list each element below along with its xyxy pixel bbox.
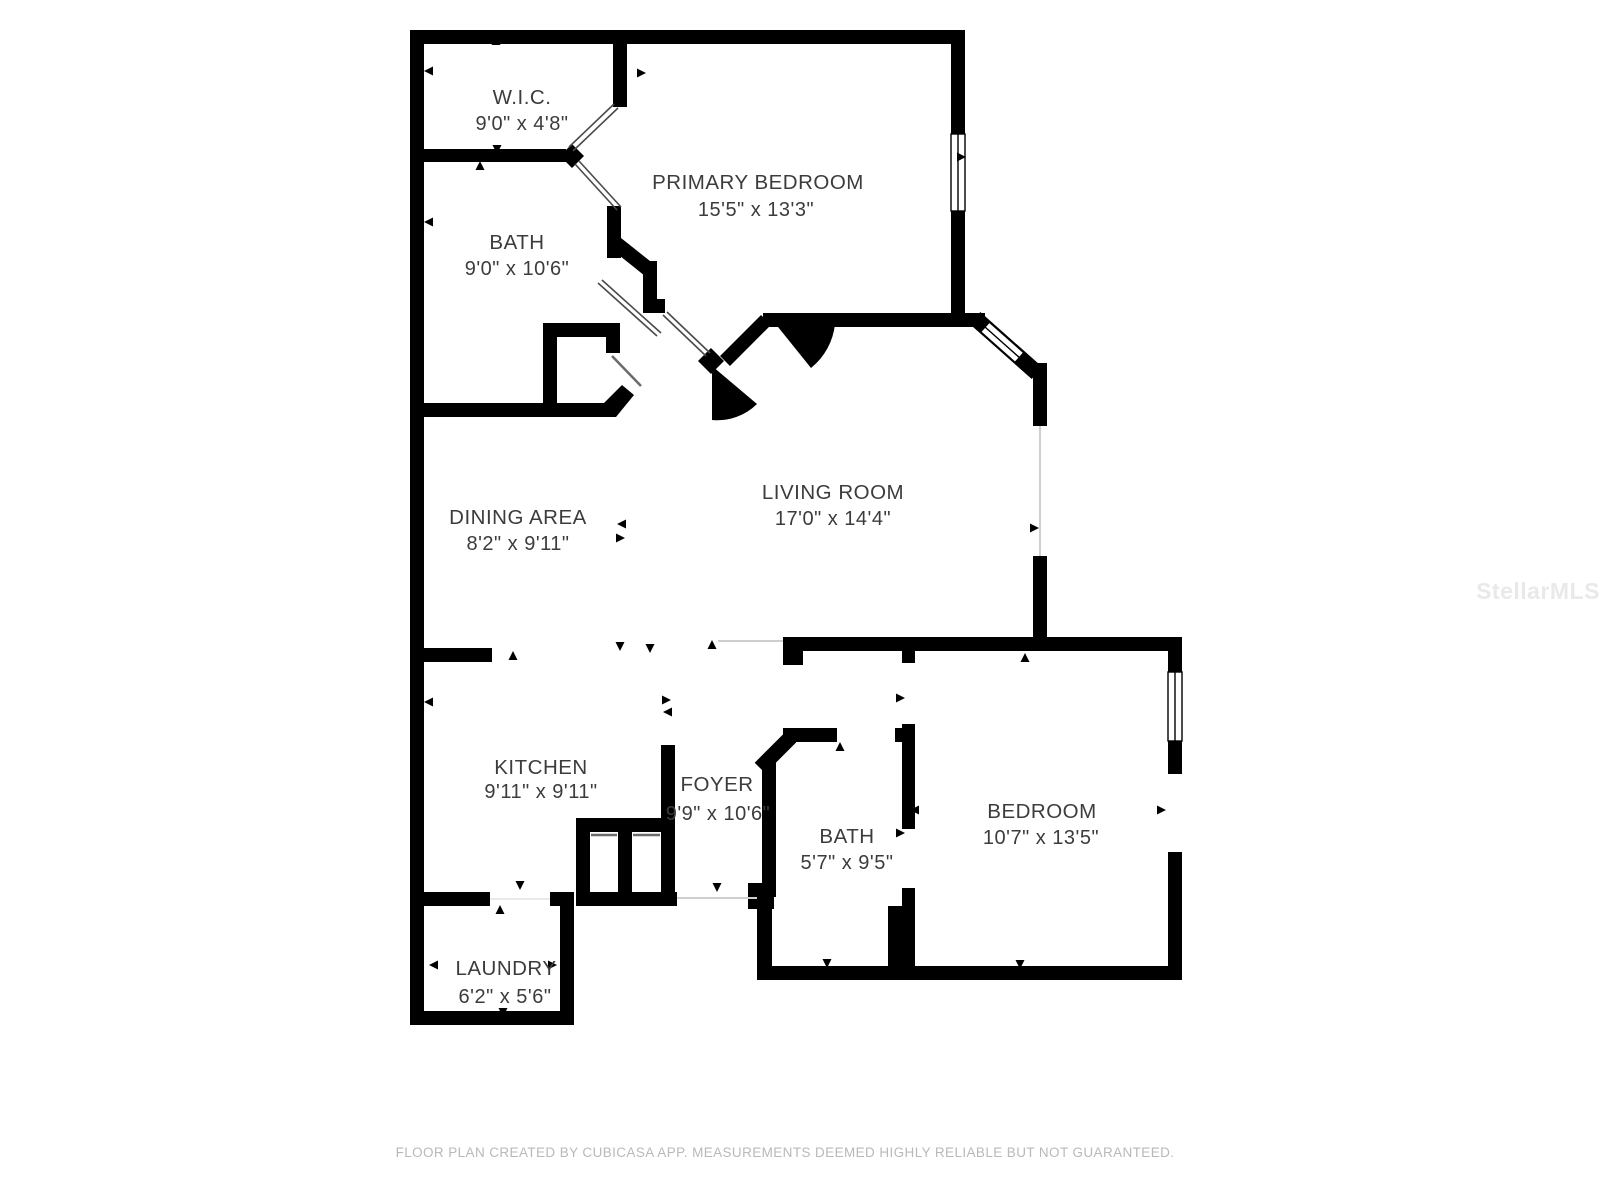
room-dims-foyer: 9'9" x 10'6" — [666, 803, 771, 825]
arrow-marker — [424, 67, 433, 76]
arrow-marker — [617, 520, 626, 529]
floor-plan-canvas: W.I.C. 9'0" x 4'8" PRIMARY BEDROOM 15'5"… — [0, 0, 1600, 1200]
arrow-marker — [713, 883, 722, 892]
room-label-foyer: FOYER — [680, 773, 753, 796]
room-dims-wic: 9'0" x 4'8" — [476, 113, 569, 135]
door-swing — [770, 317, 835, 368]
shower-door-leaf — [612, 356, 641, 386]
room-dims-bath-2: 5'7" x 9'5" — [801, 852, 894, 874]
room-dims-kitchen: 9'11" x 9'11" — [484, 781, 597, 803]
room-label-primary-bedroom: PRIMARY BEDROOM — [652, 171, 864, 194]
arrow-marker — [424, 698, 433, 707]
arrow-marker — [1157, 806, 1166, 815]
arrow-marker — [616, 642, 625, 651]
room-label-dining-area: DINING AREA — [449, 506, 587, 529]
room-label-wic: W.I.C. — [493, 86, 552, 109]
arrow-marker — [1021, 653, 1030, 662]
arrow-marker — [896, 694, 905, 703]
room-label-primary-bath: BATH — [489, 231, 544, 254]
footer-disclaimer: FLOOR PLAN CREATED BY CUBICASA APP. MEAS… — [396, 1145, 1175, 1160]
room-dims-laundry: 6'2" x 5'6" — [459, 986, 552, 1008]
room-dims-primary-bedroom: 15'5" x 13'3" — [698, 199, 814, 221]
arrow-marker — [616, 534, 625, 543]
room-label-living-room: LIVING ROOM — [762, 481, 904, 504]
room-label-bedroom: BEDROOM — [987, 800, 1096, 823]
window — [1168, 672, 1182, 741]
arrow-marker — [662, 696, 671, 705]
room-label-bath-2: BATH — [819, 825, 874, 848]
arrow-marker — [476, 161, 485, 170]
door-swing — [712, 366, 757, 420]
floor-plan: W.I.C. 9'0" x 4'8" PRIMARY BEDROOM 15'5"… — [0, 0, 1600, 1200]
room-label-kitchen: KITCHEN — [494, 756, 587, 779]
arrow-marker — [637, 69, 646, 78]
arrow-marker — [429, 961, 438, 970]
room-dims-living-room: 17'0" x 14'4" — [775, 508, 891, 530]
arrow-marker — [496, 905, 505, 914]
door-swing-wedges — [712, 317, 835, 420]
arrow-marker — [836, 742, 845, 751]
arrow-marker — [509, 651, 518, 660]
window — [951, 134, 965, 211]
arrow-marker — [646, 644, 655, 653]
room-dims-bedroom: 10'7" x 13'5" — [983, 827, 1099, 849]
watermark: StellarMLS — [1476, 578, 1600, 604]
arrow-marker — [708, 640, 717, 649]
room-label-laundry: LAUNDRY — [455, 957, 556, 980]
room-dims-dining-area: 8'2" x 9'11" — [466, 533, 569, 555]
arrow-marker — [896, 829, 905, 838]
arrow-marker — [516, 881, 525, 890]
door-leaf-lines — [569, 104, 710, 356]
arrow-marker — [663, 708, 672, 717]
arrow-marker — [424, 218, 433, 227]
arrow-marker — [1030, 524, 1039, 533]
window — [981, 322, 1024, 362]
room-dims-primary-bath: 9'0" x 10'6" — [465, 258, 570, 280]
